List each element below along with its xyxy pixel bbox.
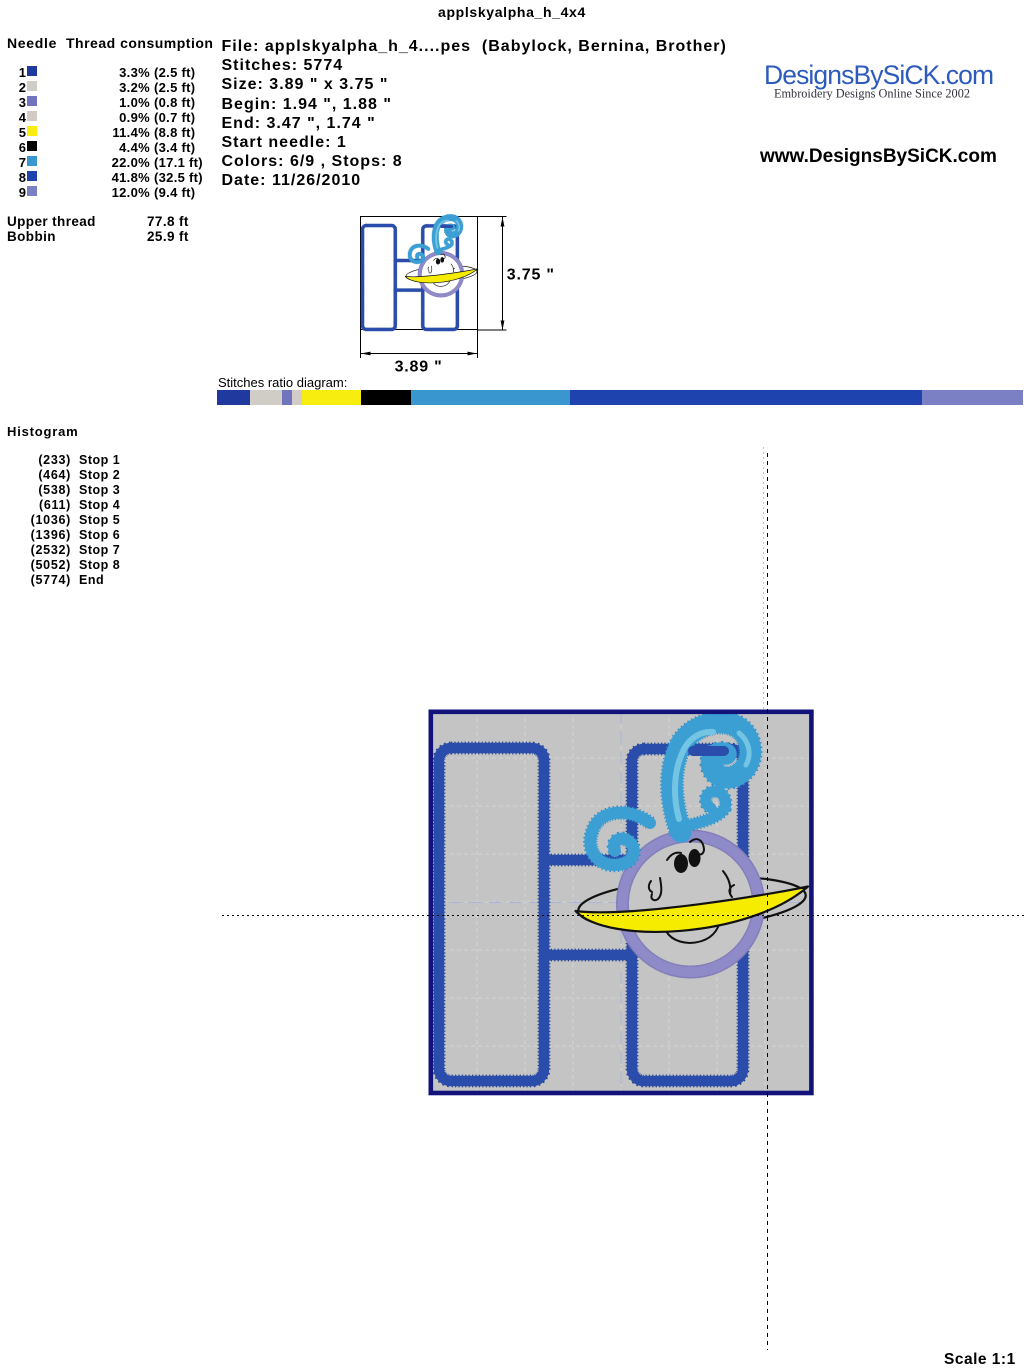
svg-text:3.89 ": 3.89 " — [395, 358, 443, 375]
svg-text:Embroidery Designs Online Sinc: Embroidery Designs Online Since 2002 — [774, 87, 970, 101]
svg-text:DesignsBySiCK.com: DesignsBySiCK.com — [764, 60, 993, 90]
svg-text:3.75 ": 3.75 " — [507, 267, 555, 284]
